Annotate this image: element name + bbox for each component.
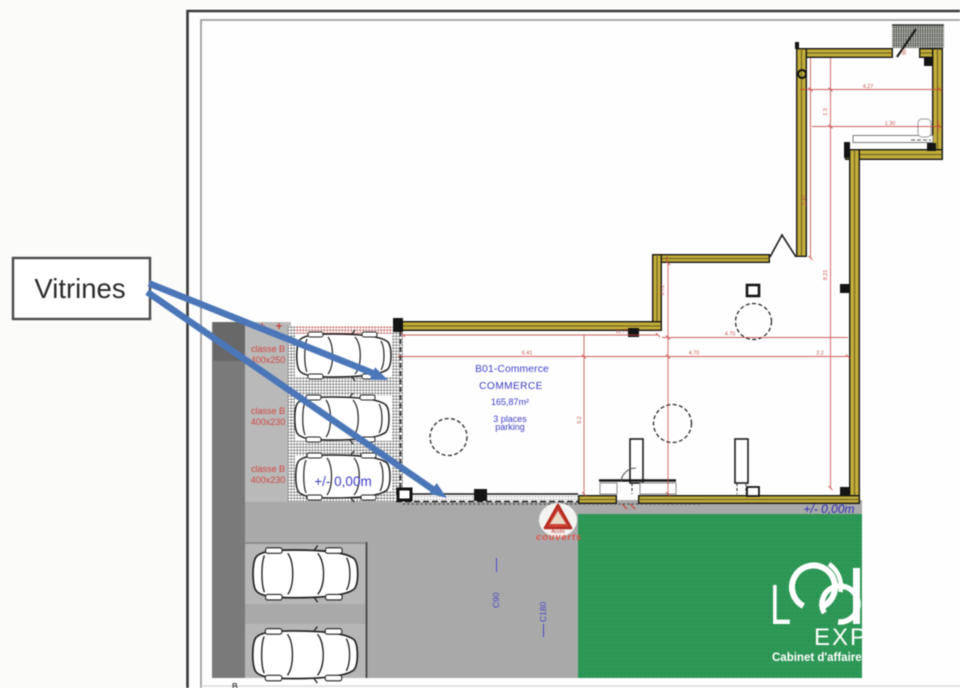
svg-text:400x230: 400x230 — [251, 417, 286, 427]
svg-text:90: 90 — [902, 49, 908, 55]
svg-text:1.3: 1.3 — [823, 108, 829, 116]
svg-text:8.21: 8.21 — [823, 270, 829, 281]
svg-text:4.27: 4.27 — [863, 84, 874, 90]
svg-text:11.77: 11.77 — [615, 329, 628, 335]
svg-text:couverts: couverts — [536, 532, 582, 543]
svg-text:Vitrines: Vitrines — [34, 273, 125, 304]
svg-text:165,87m²: 165,87m² — [491, 397, 529, 407]
svg-text:classe B: classe B — [251, 464, 285, 474]
svg-text:classe B: classe B — [251, 344, 285, 354]
svg-text:400x230: 400x230 — [251, 475, 286, 485]
svg-text:2.47: 2.47 — [802, 195, 808, 206]
svg-text:COMMERCE: COMMERCE — [479, 381, 543, 392]
svg-text:Cabinet d'affaires: Cabinet d'affaires — [772, 652, 868, 664]
svg-text:2.72: 2.72 — [660, 285, 666, 296]
svg-text:B01-Commerce: B01-Commerce — [475, 364, 549, 375]
svg-text:parking: parking — [495, 422, 525, 432]
svg-text:+/- 0,00m: +/- 0,00m — [314, 474, 371, 489]
svg-text:+/- 0,00m: +/- 0,00m — [803, 502, 854, 516]
svg-text:B: B — [232, 682, 238, 688]
svg-text:C180: C180 — [538, 601, 548, 622]
svg-text:L: L — [770, 573, 791, 637]
svg-text:C90: C90 — [491, 592, 501, 608]
svg-text:classe B: classe B — [251, 406, 285, 416]
svg-text:2.2: 2.2 — [816, 351, 824, 357]
svg-text:6.41: 6.41 — [522, 351, 533, 357]
svg-text:5.2: 5.2 — [577, 416, 583, 424]
svg-text:1.30: 1.30 — [885, 121, 896, 127]
svg-text:4.70: 4.70 — [725, 332, 736, 338]
svg-text:4.70: 4.70 — [689, 351, 700, 357]
